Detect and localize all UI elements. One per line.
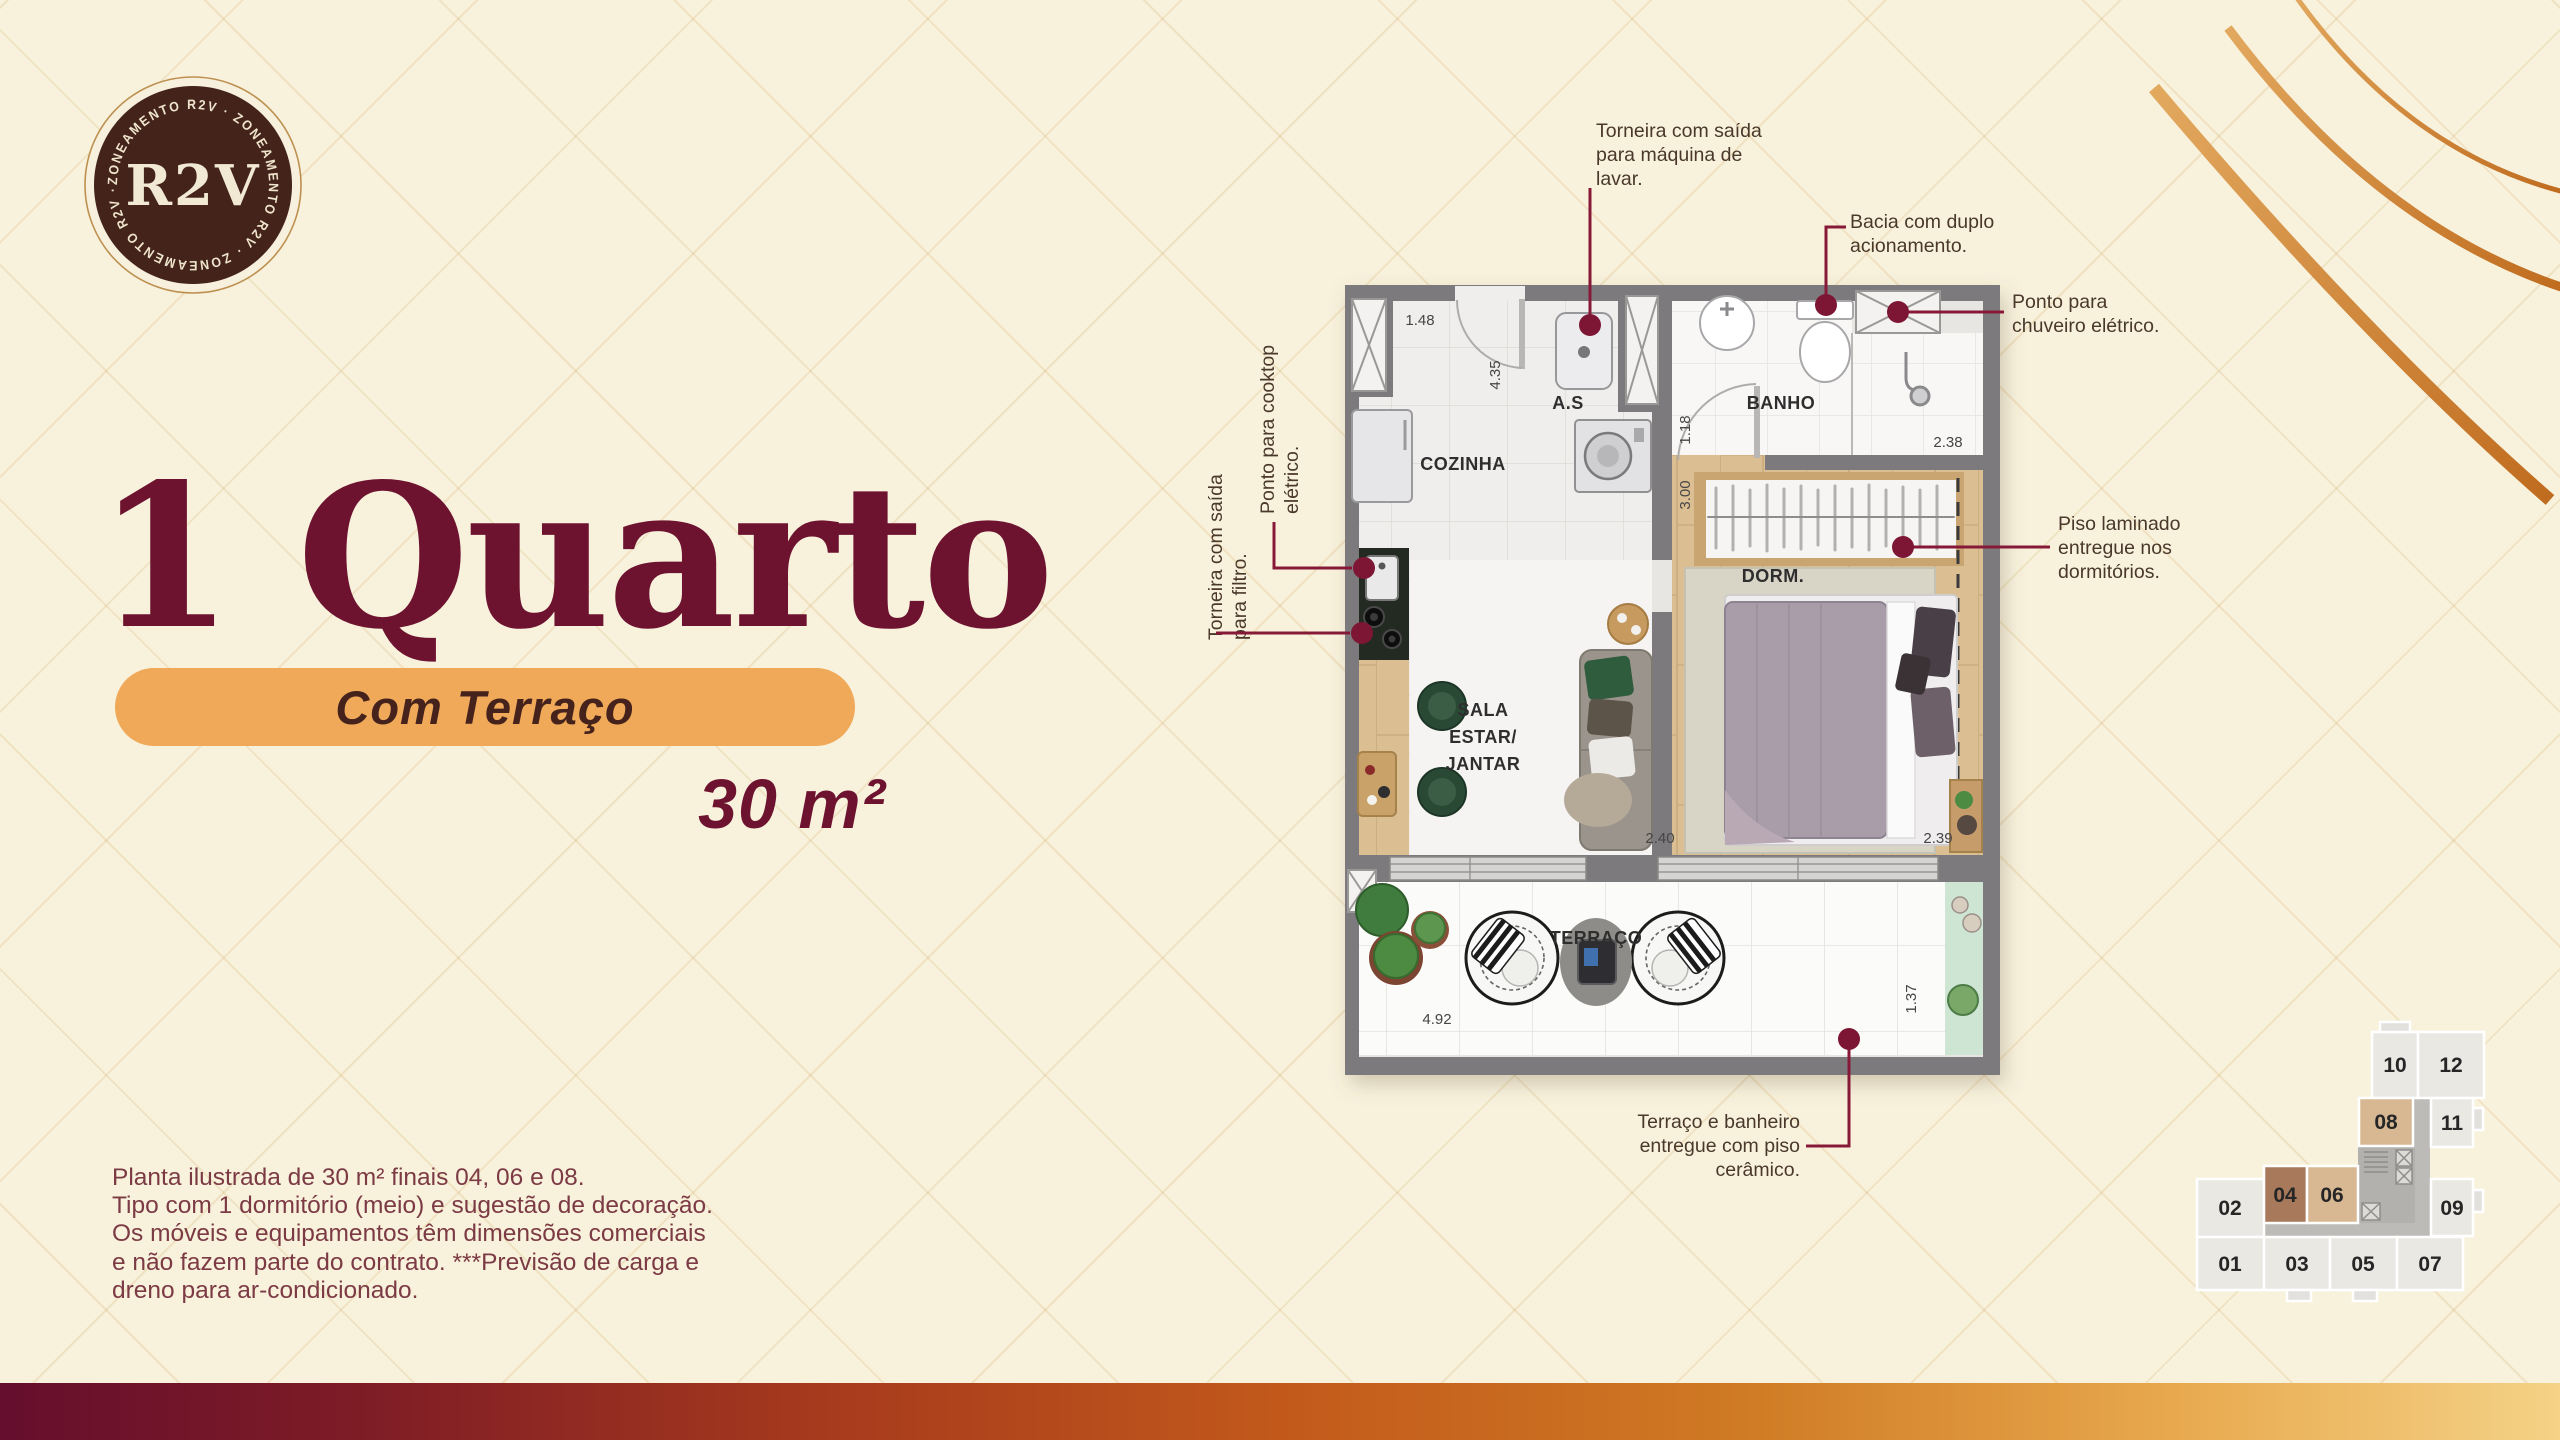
keyplan-unit: 04 (2273, 1184, 2297, 1207)
floorplan: A.S COZINHA BANHO DORM. SALA ESTAR/ JANT… (1345, 285, 2000, 1075)
keyplan: 10 12 08 11 02 04 06 09 01 03 05 07 (2197, 1022, 2484, 1301)
dim-label: 4.92 (1422, 1011, 1451, 1028)
dim-label: 1.37 (1903, 984, 1920, 1013)
keyplan-unit: 11 (2441, 1112, 2464, 1135)
terrace-windows (1390, 857, 1938, 880)
dim-label: 2.38 (1933, 434, 1962, 451)
room-label-sala: JANTAR (1446, 754, 1521, 774)
bed (1725, 595, 1957, 845)
dim-label: 2.40 (1645, 830, 1674, 847)
room-label-terraco: TERRAÇO (1550, 928, 1643, 948)
tray-table (1358, 752, 1396, 816)
keyplan-unit: 05 (2351, 1253, 2375, 1276)
room-label-sala: SALA (1458, 700, 1509, 720)
keyplan-unit: 02 (2218, 1197, 2241, 1220)
room-label-as: A.S (1552, 393, 1584, 413)
dim-label: 1.18 (1677, 415, 1694, 444)
dim-label: 3.00 (1677, 480, 1694, 509)
terrace-chair (1466, 912, 1558, 1004)
keyplan-unit: 09 (2440, 1197, 2463, 1220)
keyplan-unit: 10 (2383, 1054, 2406, 1077)
floorplan-canvas: A.S COZINHA BANHO DORM. SALA ESTAR/ JANT… (0, 0, 2560, 1440)
keyplan-unit: 12 (2439, 1054, 2462, 1077)
room-label-sala: ESTAR/ (1449, 727, 1517, 747)
keyplan-unit: 06 (2320, 1184, 2343, 1207)
room-label-cozinha: COZINHA (1420, 454, 1506, 474)
dim-label: 2.39 (1923, 830, 1952, 847)
terrace-chair (1632, 912, 1724, 1004)
dim-label: 1.48 (1405, 312, 1434, 329)
keyplan-unit: 01 (2218, 1253, 2242, 1276)
keyplan-unit: 03 (2285, 1253, 2308, 1276)
side-table (1608, 604, 1648, 644)
room-label-banho: BANHO (1747, 393, 1816, 413)
footer-gradient-bar (0, 1383, 2560, 1440)
keyplan-unit: 08 (2374, 1111, 2398, 1134)
keyplan-unit: 07 (2418, 1253, 2441, 1276)
dim-label: 4.35 (1487, 360, 1504, 389)
room-label-dorm: DORM. (1742, 566, 1805, 586)
nightstand (1950, 780, 1982, 852)
fridge (1352, 410, 1412, 502)
